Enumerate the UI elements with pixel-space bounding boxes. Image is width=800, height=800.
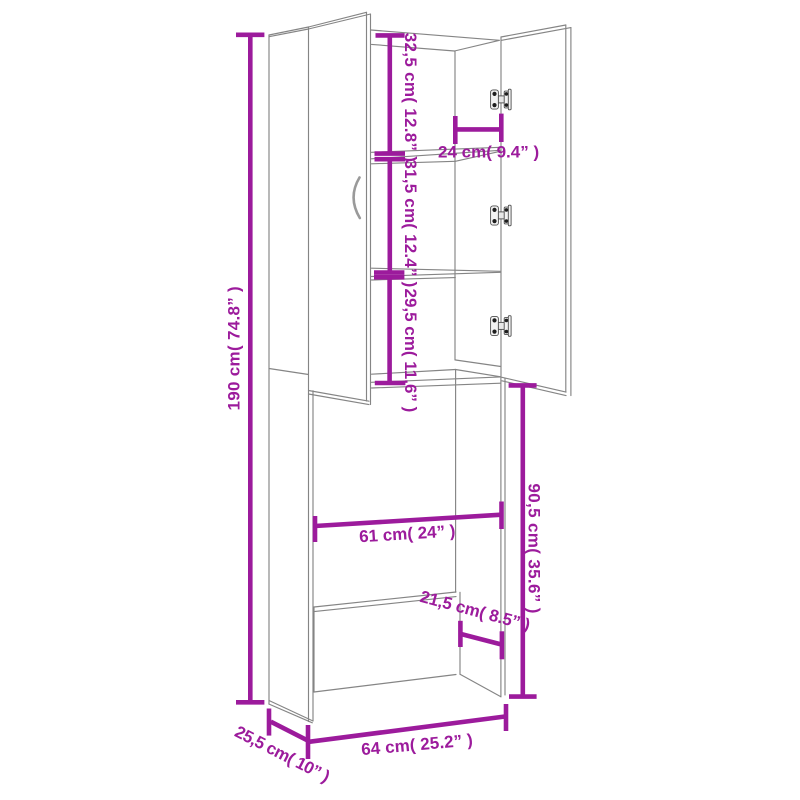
svg-text:24 cm( 9.4” ): 24 cm( 9.4” ) xyxy=(438,143,539,162)
svg-text:29,5 cm( 11.6” ): 29,5 cm( 11.6” ) xyxy=(401,289,420,413)
svg-text:32,5 cm( 12.8” ): 32,5 cm( 12.8” ) xyxy=(401,33,420,163)
svg-text:31,5 cm( 12.4” ): 31,5 cm( 12.4” ) xyxy=(401,160,420,288)
svg-text:90,5 cm( 35.6” ): 90,5 cm( 35.6” ) xyxy=(524,483,543,613)
svg-text:190 cm( 74.8” ): 190 cm( 74.8” ) xyxy=(224,286,243,411)
